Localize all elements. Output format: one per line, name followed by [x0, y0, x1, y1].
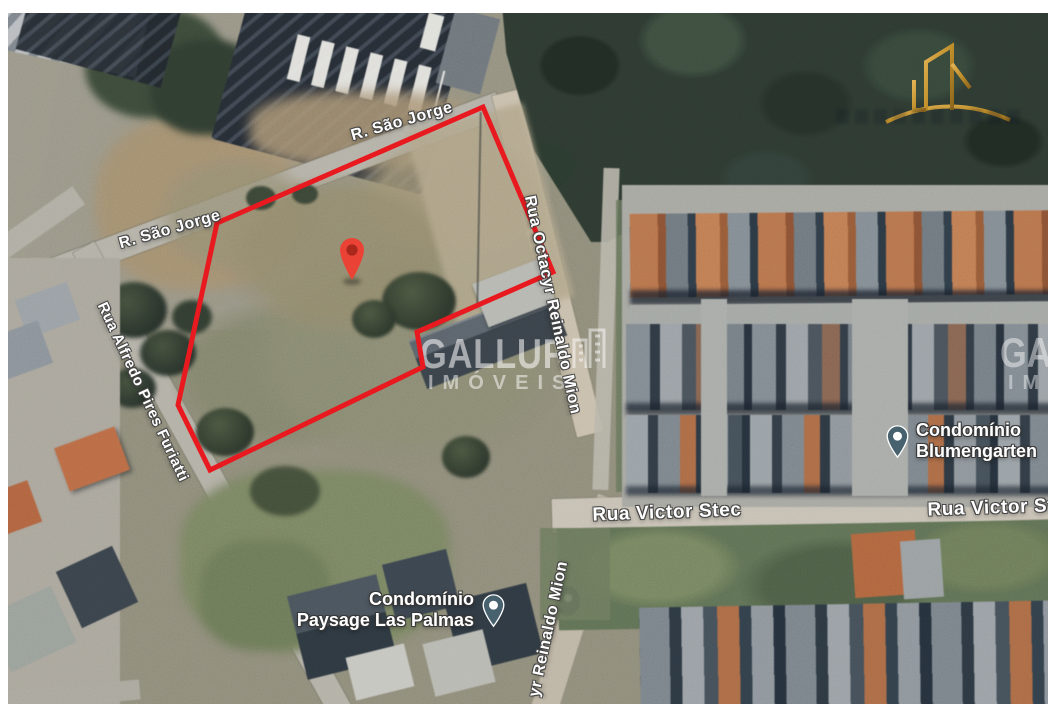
- tree: [292, 184, 318, 204]
- listing-map-image: GALLUF IMÓVEIS GA IM GALLUF R. São Jorge…: [0, 0, 1050, 706]
- poi-label-line: Blumengarten: [916, 441, 1037, 461]
- gray-driveway: [900, 539, 944, 600]
- tree: [246, 186, 276, 210]
- poi-pin-paysage-icon[interactable]: [480, 594, 507, 628]
- house-row-bottom: [639, 600, 1048, 704]
- map-frame: GALLUF IMÓVEIS GA IM GALLUF R. São Jorge…: [8, 13, 1048, 704]
- tree: [442, 436, 490, 478]
- paysage-light-building: [422, 629, 495, 696]
- house-row-2: [626, 324, 1048, 410]
- poi-pin-blumengarten-icon[interactable]: [884, 425, 911, 459]
- house-row-2-shadow: [626, 403, 1048, 415]
- street-vertical-2: [852, 299, 908, 496]
- street-horizontal-1: [630, 301, 1048, 325]
- house-row-3-shadow: [626, 486, 1048, 496]
- brand-logo-tagline-illegible: [836, 109, 1021, 124]
- house-row-1: [630, 210, 1048, 298]
- street-label-victor-stec-east: Rua Victor Stec: [927, 494, 1048, 521]
- property-marker-pin-icon[interactable]: [337, 236, 367, 282]
- poi-label-line: Condomínio: [369, 589, 474, 609]
- poi-label-line: Paysage Las Palmas: [297, 610, 474, 630]
- tree: [250, 466, 320, 516]
- tree: [352, 300, 396, 338]
- street-vertical-1: [701, 299, 727, 496]
- poi-label-paysage-las-palmas[interactable]: Condomínio Paysage Las Palmas: [297, 589, 474, 631]
- poi-label-line: Condomínio: [916, 420, 1021, 440]
- tree-cluster-west: [140, 330, 196, 376]
- map-world: GALLUF IMÓVEIS GA IM GALLUF R. São Jorge…: [8, 13, 1048, 704]
- tree: [196, 408, 254, 456]
- poi-label-blumengarten[interactable]: Condomínio Blumengarten: [916, 420, 1037, 462]
- tree-cluster-west: [172, 300, 212, 334]
